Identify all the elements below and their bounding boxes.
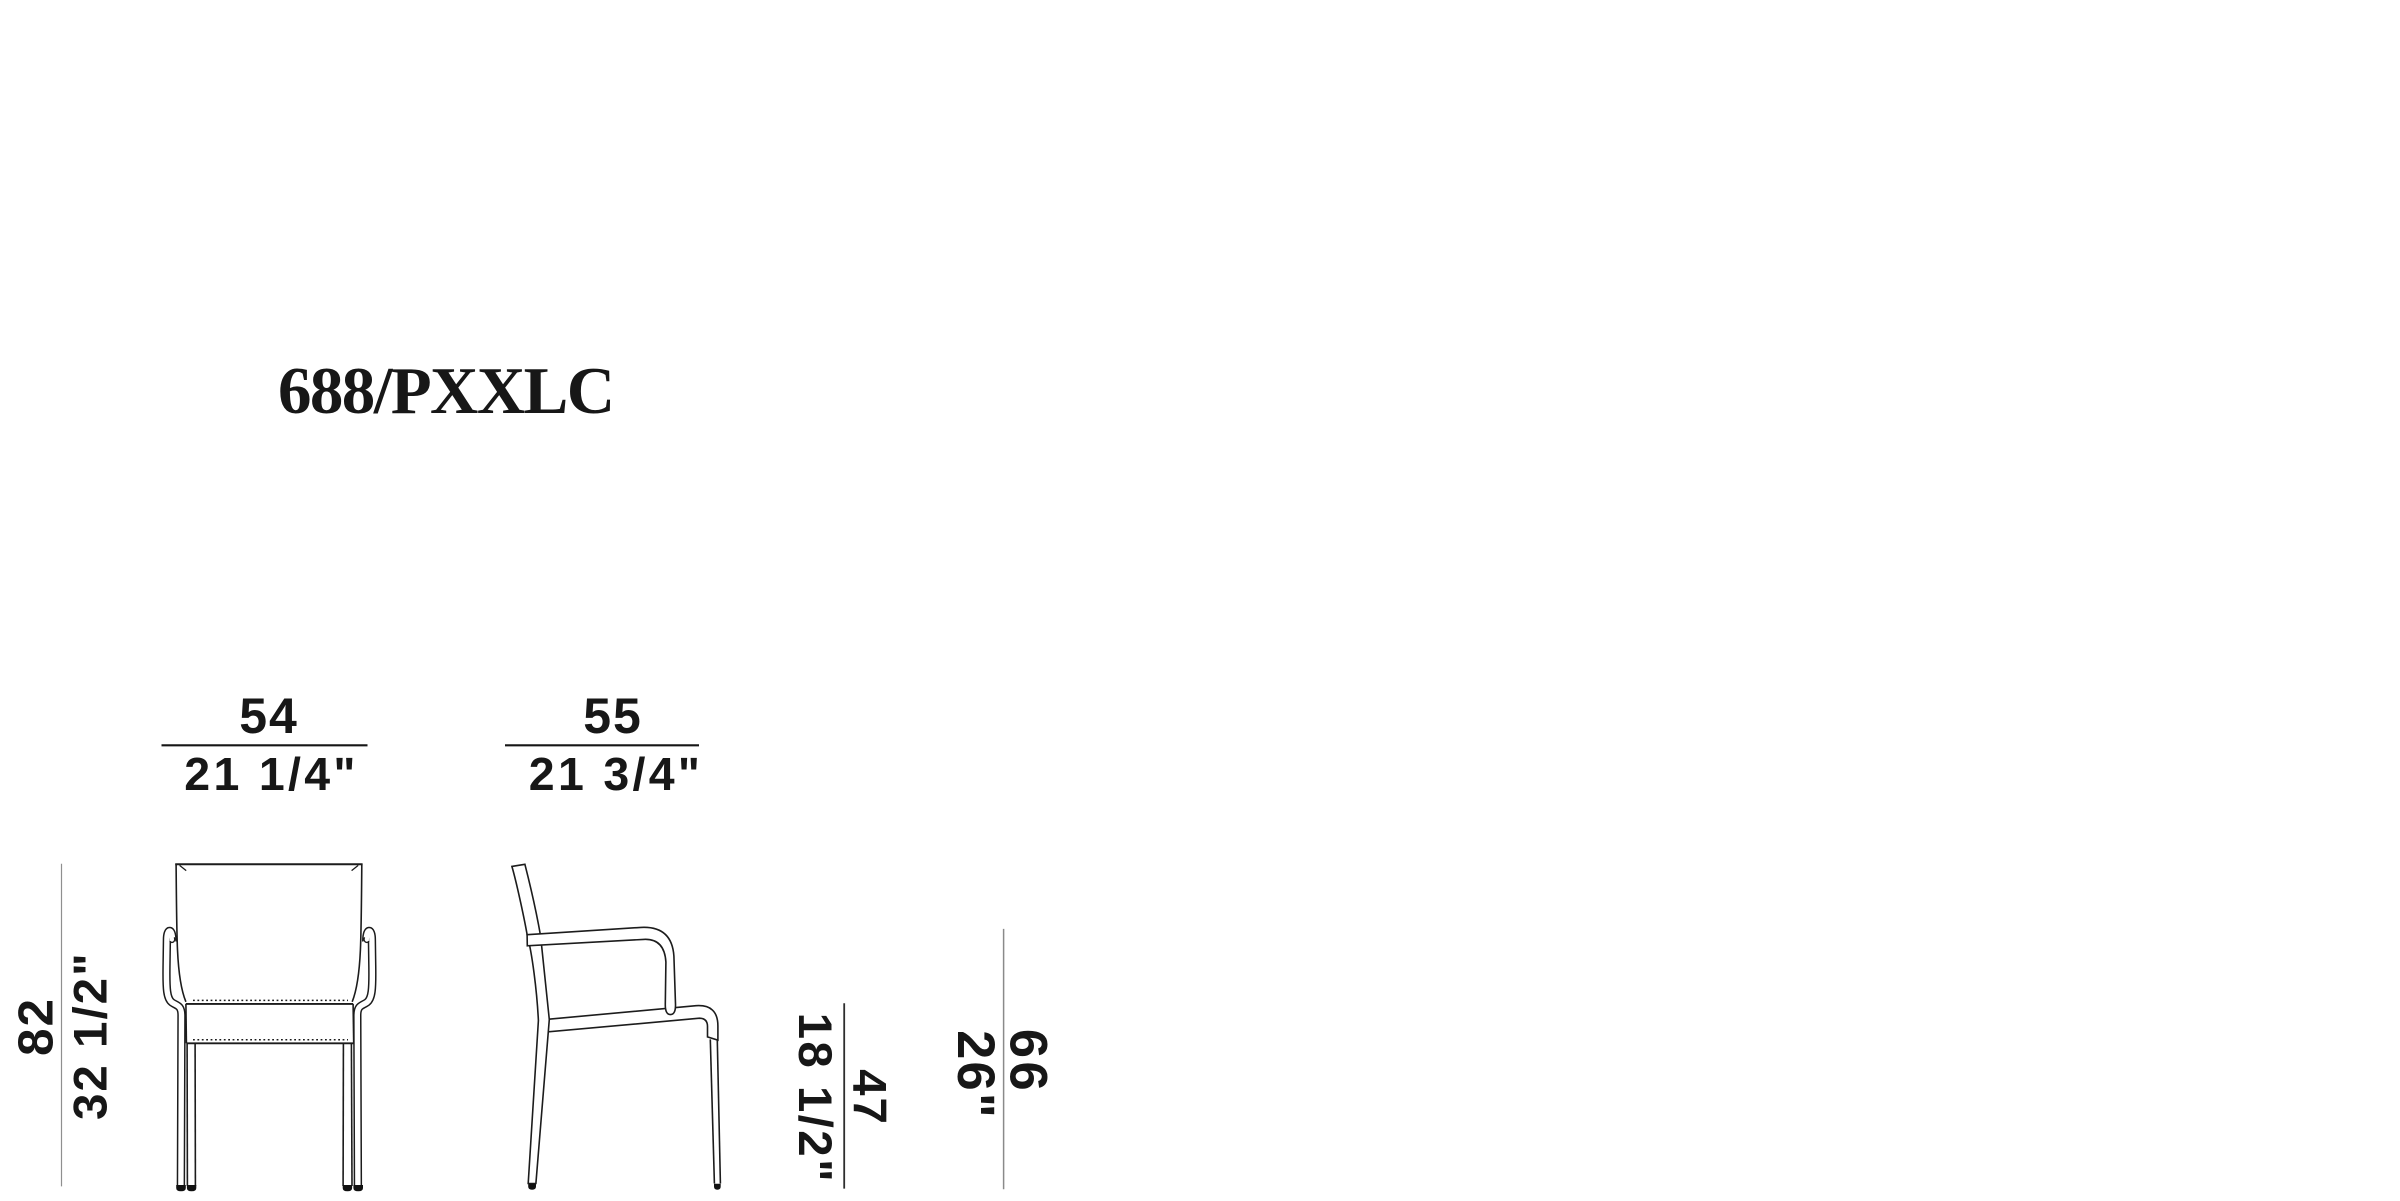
svg-text:82: 82 [9, 997, 64, 1056]
svg-text:32 1/2": 32 1/2" [65, 951, 118, 1120]
svg-text:688/PXXLC: 688/PXXLC [278, 354, 614, 428]
svg-text:21 1/4": 21 1/4" [184, 748, 358, 800]
svg-text:18 1/2": 18 1/2" [788, 1013, 841, 1184]
svg-text:21 3/4": 21 3/4" [529, 748, 703, 800]
svg-text:66: 66 [999, 1029, 1058, 1094]
svg-text:55: 55 [583, 688, 643, 744]
svg-text:54: 54 [239, 688, 299, 744]
svg-text:26": 26" [946, 1030, 1005, 1120]
svg-text:47: 47 [842, 1069, 895, 1126]
